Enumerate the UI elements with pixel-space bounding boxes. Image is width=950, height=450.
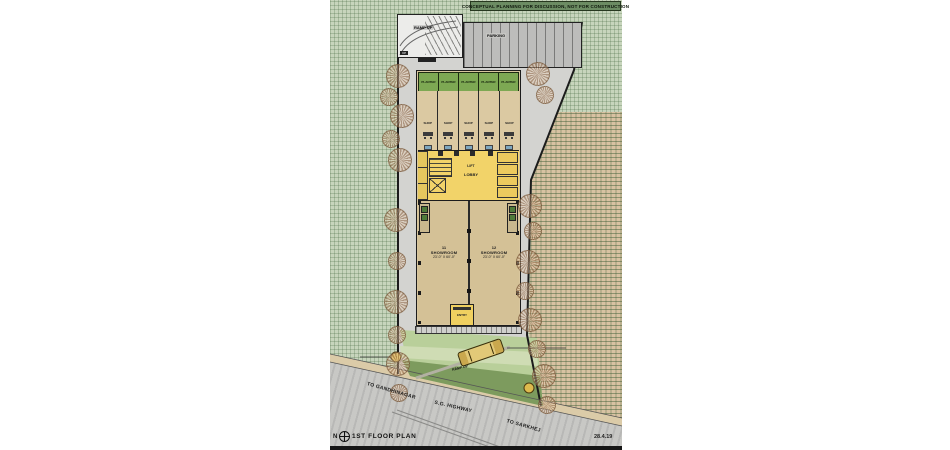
plan-title: 1ST FLOOR PLAN	[352, 433, 416, 440]
toilet-room	[497, 187, 518, 198]
sheet-border-bar	[330, 446, 622, 450]
lift-icon	[429, 178, 446, 193]
planter-strip: PLANTER PLANTER PLANTER PLANTER PLANTER	[418, 72, 519, 93]
corner-service-room	[419, 203, 430, 233]
door-icon	[425, 146, 431, 149]
door-shaft-icon	[438, 151, 443, 156]
planter-box: PLANTER	[439, 73, 459, 92]
tree-icon	[386, 352, 410, 376]
door-icon	[506, 146, 512, 149]
plan-date: 28.4.19	[594, 434, 612, 440]
core-label: LIFT LOBBY	[450, 163, 492, 179]
tree-icon	[386, 64, 410, 88]
building-footprint: PLANTER PLANTER PLANTER PLANTER PLANTER …	[416, 70, 521, 326]
planter-box: PLANTER	[499, 73, 518, 92]
column-icon	[467, 259, 471, 263]
door-shaft-icon	[470, 151, 475, 156]
tree-icon	[528, 340, 546, 358]
shop-label: SHOP	[459, 121, 478, 125]
tree-icon	[390, 104, 414, 128]
shop-label: SHOP	[438, 121, 457, 125]
desk-icon	[423, 132, 433, 136]
shop-unit: SHOP	[459, 91, 479, 150]
drawing-page: RAMP UP UP PARKING PLANTER PLANTER PLANT…	[0, 0, 950, 450]
planter-box: PLANTER	[459, 73, 479, 92]
tree-icon	[388, 148, 412, 172]
column-icon	[467, 229, 471, 233]
tree-icon	[532, 364, 556, 388]
tree-icon	[538, 396, 556, 414]
door-icon	[486, 146, 492, 149]
staircase-icon	[429, 158, 452, 177]
tree-icon	[388, 252, 406, 270]
planter-label: PLANTER	[461, 81, 475, 85]
core-label-line1: LIFT	[450, 163, 492, 171]
plan-sheet: RAMP UP UP PARKING PLANTER PLANTER PLANT…	[330, 0, 622, 450]
tree-icon	[524, 222, 542, 240]
tree-icon	[382, 130, 400, 148]
toilet-room	[497, 152, 518, 163]
entry-label: ENTRY	[451, 313, 473, 317]
desk-icon	[464, 132, 474, 136]
door-icon	[445, 146, 451, 149]
north-letter: N	[333, 434, 337, 440]
entry-canopy-icon	[453, 307, 471, 310]
parking-area: PARKING	[463, 22, 582, 68]
tree-icon	[384, 290, 408, 314]
showroom-size: 23'-0" X 60'-0"	[474, 255, 514, 259]
desk-icon	[443, 132, 453, 136]
planter-label: PLANTER	[441, 81, 455, 85]
shop-label: SHOP	[479, 121, 498, 125]
tree-icon	[526, 62, 550, 86]
showroom-size: 23'-0" X 60'-0"	[424, 255, 464, 259]
lift-lobby-core: LIFT LOBBY	[418, 151, 519, 201]
corner-service-room	[507, 203, 518, 233]
toilet-room	[497, 176, 518, 187]
door-shaft-icon	[488, 151, 493, 156]
shop-unit: SHOP	[438, 91, 458, 150]
showroom-12-label: 12 SHOWROOM 23'-0" X 60'-0"	[474, 245, 514, 259]
planter-box: PLANTER	[479, 73, 499, 92]
planter-box: PLANTER	[419, 73, 439, 92]
tree-icon	[518, 308, 542, 332]
column-icon	[467, 289, 471, 293]
tree-icon	[516, 282, 534, 300]
desk-icon	[484, 132, 494, 136]
showroom-hall: 11 SHOWROOM 23'-0" X 60'-0" 12 SHOWROOM …	[418, 201, 519, 324]
planter-label: PLANTER	[421, 81, 435, 85]
tree-icon	[388, 326, 406, 344]
tree-icon	[516, 250, 540, 274]
planter-label: PLANTER	[481, 81, 495, 85]
planter-label: PLANTER	[501, 81, 515, 85]
door-icon	[466, 146, 472, 149]
shop-unit: SHOP	[479, 91, 499, 150]
desk-icon	[504, 132, 514, 136]
core-side-rooms	[418, 151, 428, 200]
tree-icon	[380, 88, 398, 106]
core-label-line2: LOBBY	[450, 171, 492, 180]
toilet-stack	[497, 152, 518, 198]
disclaimer-banner: CONCEPTUAL PLANNING FOR DISCUSSION, NOT …	[470, 1, 621, 11]
showroom-11-label: 11 SHOWROOM 23'-0" X 60'-0"	[424, 245, 464, 259]
shop-label: SHOP	[418, 121, 437, 125]
north-compass-icon	[339, 431, 350, 442]
shop-unit: SHOP	[500, 91, 519, 150]
ramp-area: RAMP UP UP	[397, 14, 463, 58]
entry-porch: ENTRY	[450, 304, 474, 326]
disclaimer-text: CONCEPTUAL PLANNING FOR DISCUSSION, NOT …	[462, 4, 629, 9]
parking-label: PARKING	[486, 33, 506, 38]
ramp-label: RAMP UP	[413, 25, 433, 30]
shop-row: SHOP SHOP SHOP SHOP SHOP	[418, 91, 519, 151]
plinth-steps	[415, 326, 522, 334]
north-arrow: N	[333, 431, 350, 442]
ramp-curve-icon	[398, 15, 462, 56]
shop-unit: SHOP	[418, 91, 438, 150]
tree-icon	[536, 86, 554, 104]
shop-label: SHOP	[500, 121, 519, 125]
door-shaft-icon	[454, 151, 459, 156]
ramp-up-tag: UP	[400, 51, 408, 55]
toilet-room	[497, 164, 518, 175]
tree-icon	[384, 208, 408, 232]
tree-icon	[518, 194, 542, 218]
